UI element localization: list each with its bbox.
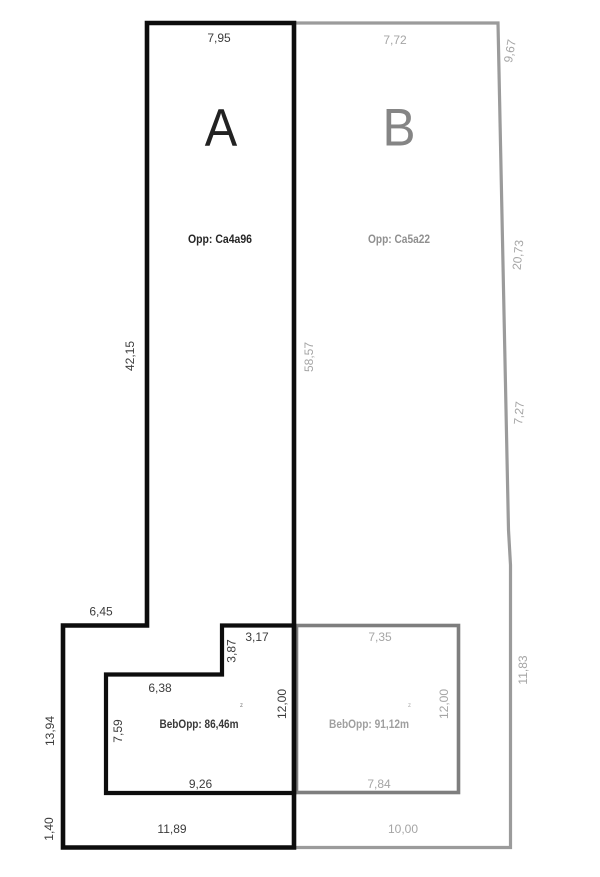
svg-text:11,83: 11,83 xyxy=(516,655,530,684)
svg-text:7,72: 7,72 xyxy=(383,33,407,47)
svg-text:7,84: 7,84 xyxy=(367,777,391,791)
svg-text:3,17: 3,17 xyxy=(245,630,269,644)
svg-text:7,27: 7,27 xyxy=(511,400,527,425)
svg-text:z: z xyxy=(240,703,243,709)
svg-text:11,89: 11,89 xyxy=(157,822,186,836)
svg-text:6,38: 6,38 xyxy=(148,681,172,695)
svg-text:1,40: 1,40 xyxy=(42,817,56,841)
svg-text:20,73: 20,73 xyxy=(510,239,527,270)
svg-text:9,26: 9,26 xyxy=(189,777,213,791)
svg-text:B: B xyxy=(383,99,416,158)
svg-text:z: z xyxy=(408,703,411,709)
svg-text:58,57: 58,57 xyxy=(302,342,316,372)
svg-text:3,87: 3,87 xyxy=(225,639,239,663)
svg-text:A: A xyxy=(205,99,238,158)
svg-text:12,00: 12,00 xyxy=(437,689,451,719)
svg-text:BebOpp: 91,12m: BebOpp: 91,12m xyxy=(329,717,409,731)
svg-text:7,35: 7,35 xyxy=(368,630,392,644)
svg-text:13,94: 13,94 xyxy=(43,716,57,746)
svg-text:Opp: Ca5a22: Opp: Ca5a22 xyxy=(368,232,430,246)
svg-text:7,95: 7,95 xyxy=(207,31,231,45)
svg-text:BebOpp: 86,46m: BebOpp: 86,46m xyxy=(160,717,239,731)
svg-text:Opp: Ca4a96: Opp: Ca4a96 xyxy=(188,232,252,246)
svg-text:6,45: 6,45 xyxy=(89,605,113,619)
svg-text:10,00: 10,00 xyxy=(388,822,418,836)
svg-text:7,59: 7,59 xyxy=(111,719,125,743)
svg-text:12,00: 12,00 xyxy=(275,689,289,719)
svg-text:42,15: 42,15 xyxy=(123,341,137,371)
